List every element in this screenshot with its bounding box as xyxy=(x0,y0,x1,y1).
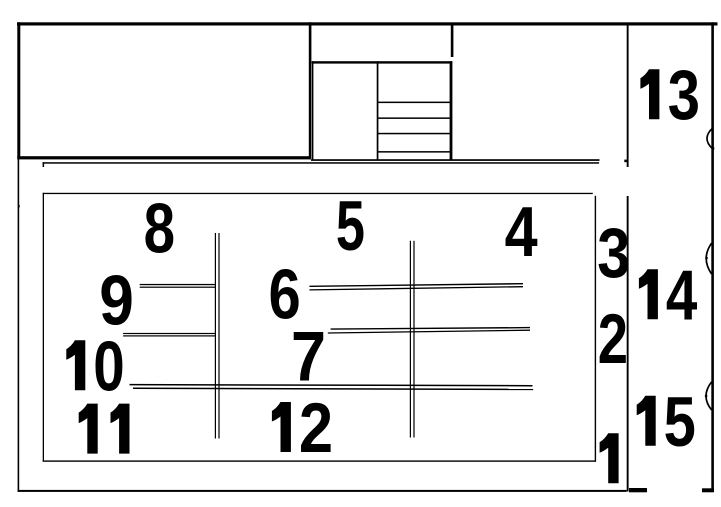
svg-text:0: 0 xyxy=(93,326,124,406)
svg-text:3: 3 xyxy=(597,213,630,292)
svg-text:8: 8 xyxy=(144,188,175,268)
svg-text:4: 4 xyxy=(505,192,538,271)
svg-text:2: 2 xyxy=(299,389,333,468)
svg-text:5: 5 xyxy=(664,381,696,461)
svg-text:7: 7 xyxy=(291,317,326,396)
svg-text:3: 3 xyxy=(668,55,700,135)
svg-text:4: 4 xyxy=(666,255,698,335)
svg-text:2: 2 xyxy=(598,300,628,378)
svg-text:5: 5 xyxy=(336,188,365,266)
